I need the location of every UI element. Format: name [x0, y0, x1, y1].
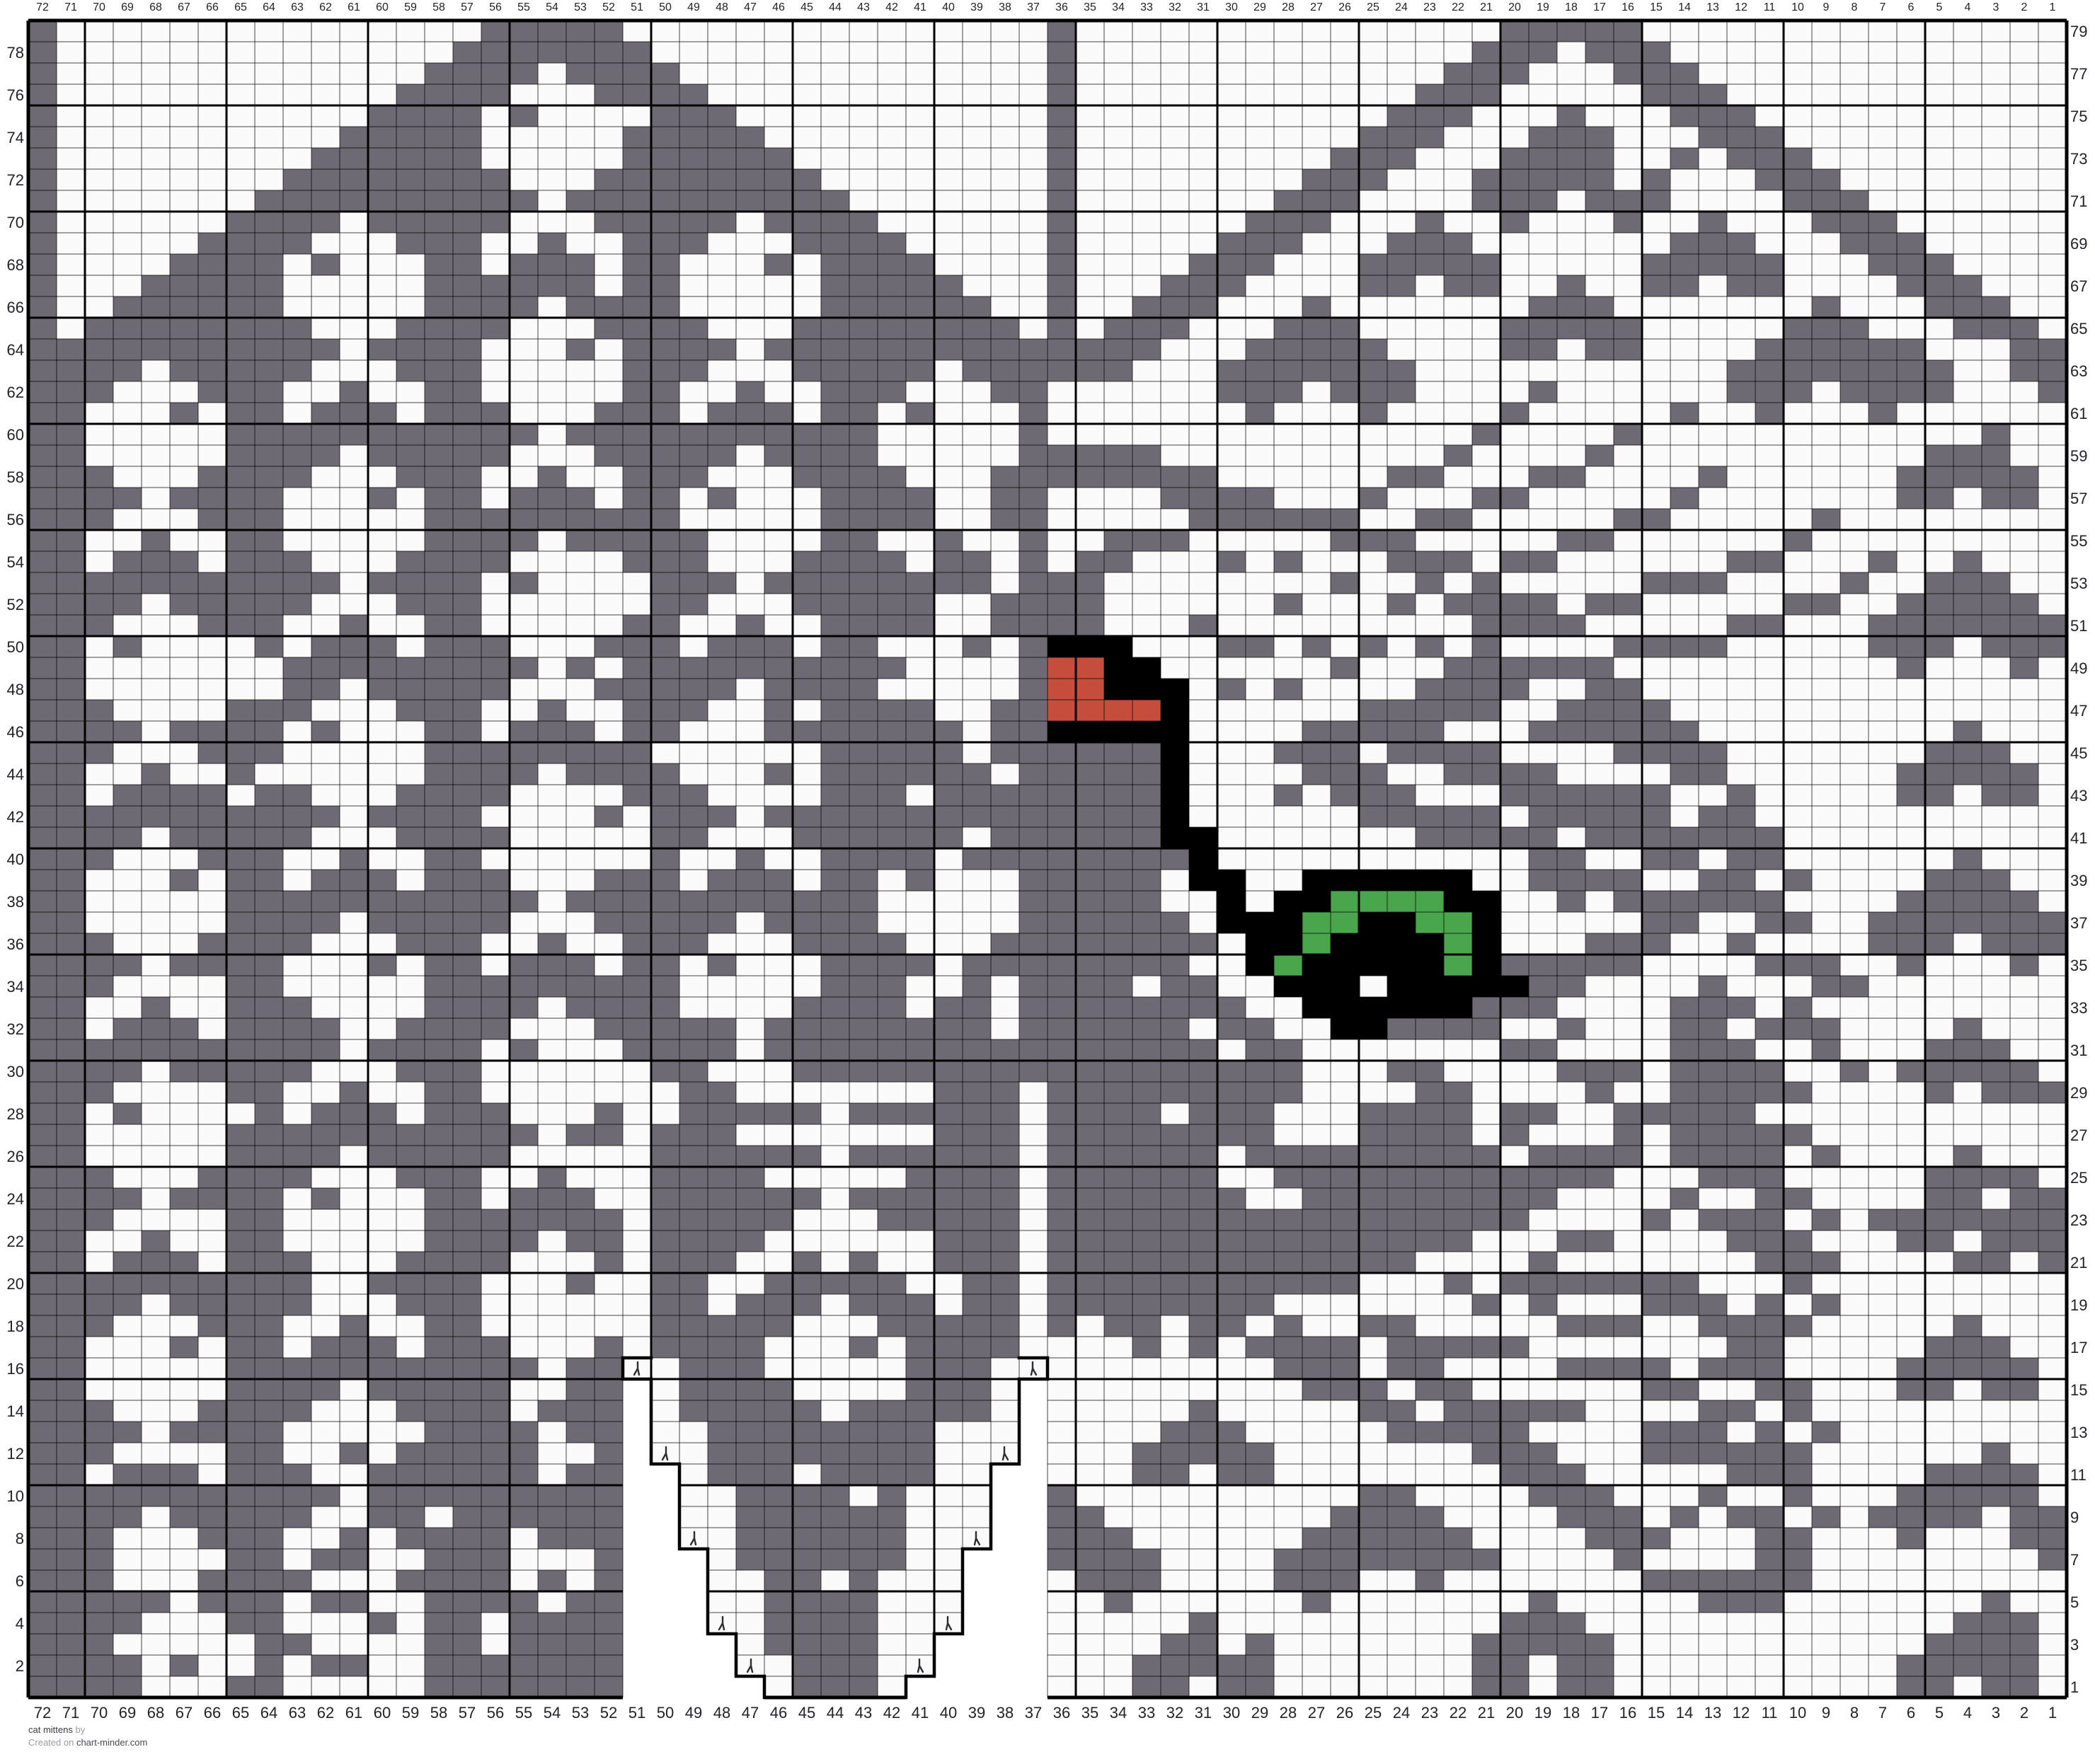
svg-text:6: 6 — [16, 1572, 24, 1590]
svg-text:10: 10 — [1789, 1704, 1806, 1722]
svg-text:60: 60 — [374, 1704, 391, 1722]
svg-text:33: 33 — [1140, 1, 1153, 13]
svg-text:29: 29 — [1253, 1, 1266, 13]
svg-text:41: 41 — [914, 1, 926, 13]
svg-text:44: 44 — [7, 766, 24, 783]
svg-text:25: 25 — [1367, 1, 1379, 13]
svg-text:46: 46 — [770, 1704, 787, 1722]
svg-text:79: 79 — [2070, 23, 2087, 40]
svg-text:69: 69 — [121, 1, 134, 13]
svg-text:33: 33 — [2070, 999, 2087, 1017]
svg-text:3: 3 — [2070, 1636, 2079, 1654]
svg-text:3: 3 — [1992, 1704, 2000, 1722]
svg-text:71: 71 — [2070, 192, 2087, 210]
svg-text:39: 39 — [968, 1704, 985, 1722]
svg-text:71: 71 — [62, 1704, 79, 1722]
svg-text:45: 45 — [798, 1704, 815, 1722]
svg-text:56: 56 — [7, 511, 24, 529]
svg-text:55: 55 — [517, 1, 530, 13]
svg-text:50: 50 — [657, 1704, 674, 1722]
svg-text:62: 62 — [7, 384, 24, 401]
svg-text:53: 53 — [574, 1, 587, 13]
svg-text:58: 58 — [7, 468, 24, 486]
svg-text:8: 8 — [1852, 1, 1858, 13]
svg-text:48: 48 — [713, 1704, 730, 1722]
svg-text:52: 52 — [600, 1704, 617, 1722]
svg-text:50: 50 — [7, 638, 24, 656]
svg-text:55: 55 — [515, 1704, 532, 1722]
svg-text:11: 11 — [1762, 1704, 1778, 1722]
svg-text:19: 19 — [1534, 1704, 1551, 1722]
svg-text:28: 28 — [1280, 1704, 1297, 1722]
svg-text:cat mittens by: cat mittens by — [28, 1724, 86, 1735]
svg-text:23: 23 — [1423, 1, 1436, 13]
svg-text:46: 46 — [7, 723, 24, 741]
svg-text:50: 50 — [659, 1, 672, 13]
svg-text:56: 56 — [489, 1, 502, 13]
svg-text:41: 41 — [912, 1704, 929, 1722]
svg-text:39: 39 — [2070, 872, 2087, 889]
svg-text:52: 52 — [7, 596, 24, 613]
svg-text:8: 8 — [16, 1530, 24, 1547]
svg-text:66: 66 — [206, 1, 219, 13]
svg-text:24: 24 — [1395, 1, 1408, 13]
svg-text:51: 51 — [628, 1704, 645, 1722]
svg-text:13: 13 — [2070, 1424, 2087, 1441]
svg-text:46: 46 — [772, 1, 785, 13]
svg-text:37: 37 — [1025, 1704, 1042, 1722]
svg-text:60: 60 — [376, 1, 389, 13]
svg-text:36: 36 — [1055, 1, 1068, 13]
svg-text:11: 11 — [2070, 1466, 2087, 1484]
svg-text:44: 44 — [827, 1704, 844, 1722]
svg-text:36: 36 — [7, 935, 24, 953]
svg-text:15: 15 — [2070, 1381, 2087, 1399]
svg-text:30: 30 — [1225, 1, 1238, 13]
svg-text:42: 42 — [883, 1704, 900, 1722]
svg-text:70: 70 — [93, 1, 105, 13]
svg-text:23: 23 — [1421, 1704, 1438, 1722]
svg-text:5: 5 — [2070, 1593, 2079, 1611]
svg-text:30: 30 — [1223, 1704, 1240, 1722]
svg-text:21: 21 — [1480, 1, 1493, 13]
svg-text:63: 63 — [289, 1704, 306, 1722]
svg-text:57: 57 — [461, 1, 473, 13]
svg-text:70: 70 — [7, 214, 24, 231]
svg-text:Created on chart-minder.com: Created on chart-minder.com — [28, 1737, 147, 1748]
svg-text:2: 2 — [2021, 1, 2028, 13]
svg-text:22: 22 — [1450, 1704, 1466, 1722]
svg-text:4: 4 — [1963, 1704, 1972, 1722]
svg-text:45: 45 — [800, 1, 813, 13]
svg-text:22: 22 — [7, 1233, 24, 1250]
svg-text:61: 61 — [348, 1, 360, 13]
svg-text:33: 33 — [1138, 1704, 1155, 1722]
svg-text:28: 28 — [1282, 1, 1295, 13]
svg-text:73: 73 — [2070, 150, 2087, 168]
svg-text:54: 54 — [7, 553, 24, 571]
svg-text:29: 29 — [2070, 1084, 2087, 1102]
svg-text:49: 49 — [687, 1, 700, 13]
svg-text:5: 5 — [1936, 1, 1943, 13]
svg-text:74: 74 — [7, 129, 24, 146]
svg-text:27: 27 — [1308, 1704, 1325, 1722]
svg-text:70: 70 — [91, 1704, 108, 1722]
svg-text:30: 30 — [7, 1063, 24, 1080]
svg-text:40: 40 — [7, 851, 24, 868]
svg-text:25: 25 — [2070, 1169, 2087, 1187]
svg-text:21: 21 — [1478, 1704, 1495, 1722]
svg-text:66: 66 — [7, 299, 24, 316]
svg-text:28: 28 — [7, 1105, 24, 1123]
svg-text:40: 40 — [940, 1704, 957, 1722]
svg-text:37: 37 — [1027, 1, 1040, 13]
svg-text:48: 48 — [716, 1, 728, 13]
svg-text:26: 26 — [1338, 1, 1351, 13]
svg-text:34: 34 — [7, 978, 24, 996]
svg-text:32: 32 — [1166, 1704, 1183, 1722]
svg-text:9: 9 — [2070, 1509, 2079, 1526]
svg-text:57: 57 — [2070, 490, 2087, 507]
svg-text:42: 42 — [7, 808, 24, 826]
svg-text:6: 6 — [1908, 1, 1915, 13]
svg-text:19: 19 — [1537, 1, 1549, 13]
svg-text:65: 65 — [234, 1, 247, 13]
svg-text:32: 32 — [1169, 1, 1181, 13]
svg-text:67: 67 — [176, 1704, 193, 1722]
svg-text:68: 68 — [147, 1704, 164, 1722]
svg-text:2: 2 — [16, 1657, 24, 1675]
svg-text:76: 76 — [7, 86, 24, 104]
svg-text:66: 66 — [204, 1704, 221, 1722]
svg-text:64: 64 — [7, 341, 24, 359]
svg-text:59: 59 — [402, 1704, 419, 1722]
svg-text:29: 29 — [1251, 1704, 1268, 1722]
svg-text:20: 20 — [7, 1275, 24, 1293]
svg-text:3: 3 — [1993, 1, 1999, 13]
svg-text:44: 44 — [829, 1, 842, 13]
svg-text:16: 16 — [1619, 1704, 1636, 1722]
svg-text:55: 55 — [2070, 532, 2087, 550]
svg-text:14: 14 — [1676, 1704, 1693, 1722]
svg-text:39: 39 — [970, 1, 983, 13]
svg-text:8: 8 — [1850, 1704, 1859, 1722]
svg-text:7: 7 — [2070, 1551, 2079, 1569]
svg-text:23: 23 — [2070, 1211, 2087, 1229]
svg-text:26: 26 — [7, 1148, 24, 1165]
svg-text:10: 10 — [1791, 1, 1804, 13]
svg-text:19: 19 — [2070, 1296, 2087, 1314]
svg-text:18: 18 — [1563, 1704, 1580, 1722]
svg-text:63: 63 — [2070, 362, 2087, 380]
svg-text:40: 40 — [942, 1, 955, 13]
svg-text:52: 52 — [602, 1, 615, 13]
svg-text:16: 16 — [1622, 1, 1634, 13]
svg-text:38: 38 — [7, 893, 24, 911]
svg-text:9: 9 — [1823, 1, 1830, 13]
svg-text:69: 69 — [119, 1704, 136, 1722]
svg-text:53: 53 — [572, 1704, 589, 1722]
svg-text:32: 32 — [7, 1020, 24, 1038]
svg-text:71: 71 — [64, 1, 77, 13]
svg-text:1: 1 — [2070, 1678, 2079, 1696]
svg-text:48: 48 — [7, 681, 24, 698]
svg-text:57: 57 — [459, 1704, 476, 1722]
svg-text:38: 38 — [999, 1, 1011, 13]
svg-text:77: 77 — [2070, 65, 2087, 83]
svg-text:14: 14 — [7, 1402, 24, 1420]
svg-text:6: 6 — [1907, 1704, 1915, 1722]
svg-text:20: 20 — [1508, 1, 1521, 13]
svg-text:68: 68 — [7, 256, 24, 274]
svg-text:56: 56 — [487, 1704, 504, 1722]
svg-text:17: 17 — [2070, 1339, 2087, 1356]
svg-text:78: 78 — [7, 44, 24, 62]
svg-text:34: 34 — [1112, 1, 1125, 13]
svg-text:7: 7 — [1880, 1, 1886, 13]
svg-text:21: 21 — [2070, 1254, 2087, 1272]
svg-text:13: 13 — [1704, 1704, 1721, 1722]
svg-text:65: 65 — [232, 1704, 249, 1722]
svg-text:51: 51 — [2070, 617, 2087, 635]
svg-text:69: 69 — [2070, 235, 2087, 253]
svg-text:51: 51 — [631, 1, 643, 13]
svg-text:31: 31 — [1197, 1, 1210, 13]
svg-text:64: 64 — [260, 1704, 277, 1722]
svg-text:16: 16 — [7, 1360, 24, 1378]
svg-text:18: 18 — [1565, 1, 1578, 13]
svg-text:60: 60 — [7, 426, 24, 444]
svg-text:67: 67 — [178, 1, 190, 13]
svg-text:47: 47 — [2070, 702, 2087, 720]
svg-text:42: 42 — [885, 1, 898, 13]
svg-text:12: 12 — [1735, 1, 1747, 13]
svg-text:49: 49 — [685, 1704, 702, 1722]
svg-text:17: 17 — [1591, 1704, 1608, 1722]
svg-text:27: 27 — [1310, 1, 1323, 13]
svg-text:61: 61 — [2070, 405, 2087, 422]
svg-text:45: 45 — [2070, 744, 2087, 762]
svg-text:4: 4 — [16, 1615, 24, 1632]
svg-text:62: 62 — [319, 1, 332, 13]
svg-text:47: 47 — [744, 1, 757, 13]
svg-text:38: 38 — [997, 1704, 1014, 1722]
svg-text:26: 26 — [1336, 1704, 1353, 1722]
svg-text:72: 72 — [36, 1, 49, 13]
svg-text:68: 68 — [149, 1, 162, 13]
svg-text:47: 47 — [742, 1704, 759, 1722]
svg-text:13: 13 — [1706, 1, 1719, 13]
svg-text:63: 63 — [291, 1, 304, 13]
svg-text:34: 34 — [1110, 1704, 1127, 1722]
svg-text:41: 41 — [2070, 829, 2087, 847]
svg-text:24: 24 — [7, 1190, 24, 1208]
svg-text:62: 62 — [317, 1704, 334, 1722]
svg-text:53: 53 — [2070, 575, 2087, 592]
svg-text:58: 58 — [430, 1704, 447, 1722]
svg-text:64: 64 — [263, 1, 275, 13]
svg-text:59: 59 — [2070, 447, 2087, 465]
svg-text:54: 54 — [544, 1704, 561, 1722]
svg-text:15: 15 — [1648, 1704, 1665, 1722]
svg-text:1: 1 — [2048, 1704, 2057, 1722]
svg-text:35: 35 — [2070, 957, 2087, 974]
svg-text:12: 12 — [7, 1445, 24, 1463]
svg-text:35: 35 — [1081, 1704, 1098, 1722]
svg-text:2: 2 — [2020, 1704, 2028, 1722]
svg-text:18: 18 — [7, 1318, 24, 1335]
svg-text:11: 11 — [1764, 1, 1776, 13]
svg-text:10: 10 — [7, 1487, 24, 1505]
svg-text:43: 43 — [2070, 787, 2087, 805]
svg-text:67: 67 — [2070, 277, 2087, 295]
svg-text:37: 37 — [2070, 914, 2087, 932]
svg-text:36: 36 — [1053, 1704, 1070, 1722]
svg-text:5: 5 — [1935, 1704, 1944, 1722]
svg-text:24: 24 — [1393, 1704, 1410, 1722]
svg-text:72: 72 — [7, 171, 24, 189]
svg-text:1: 1 — [2050, 1, 2056, 13]
svg-text:22: 22 — [1452, 1, 1464, 13]
svg-text:20: 20 — [1506, 1704, 1523, 1722]
svg-text:43: 43 — [855, 1704, 872, 1722]
svg-text:59: 59 — [404, 1, 417, 13]
svg-text:75: 75 — [2070, 108, 2087, 125]
svg-text:49: 49 — [2070, 659, 2087, 677]
svg-text:31: 31 — [1195, 1704, 1212, 1722]
svg-text:12: 12 — [1733, 1704, 1750, 1722]
svg-text:61: 61 — [345, 1704, 362, 1722]
svg-text:58: 58 — [432, 1, 445, 13]
svg-text:9: 9 — [1822, 1704, 1830, 1722]
svg-text:65: 65 — [2070, 320, 2087, 338]
svg-text:4: 4 — [1965, 1, 1971, 13]
svg-text:17: 17 — [1593, 1, 1606, 13]
svg-text:43: 43 — [857, 1, 870, 13]
svg-text:72: 72 — [34, 1704, 51, 1722]
svg-text:15: 15 — [1650, 1, 1663, 13]
svg-text:31: 31 — [2070, 1042, 2087, 1059]
svg-text:7: 7 — [1878, 1704, 1887, 1722]
svg-text:27: 27 — [2070, 1126, 2087, 1144]
svg-text:14: 14 — [1678, 1, 1691, 13]
svg-text:54: 54 — [546, 1, 558, 13]
svg-text:35: 35 — [1084, 1, 1096, 13]
svg-text:25: 25 — [1365, 1704, 1382, 1722]
